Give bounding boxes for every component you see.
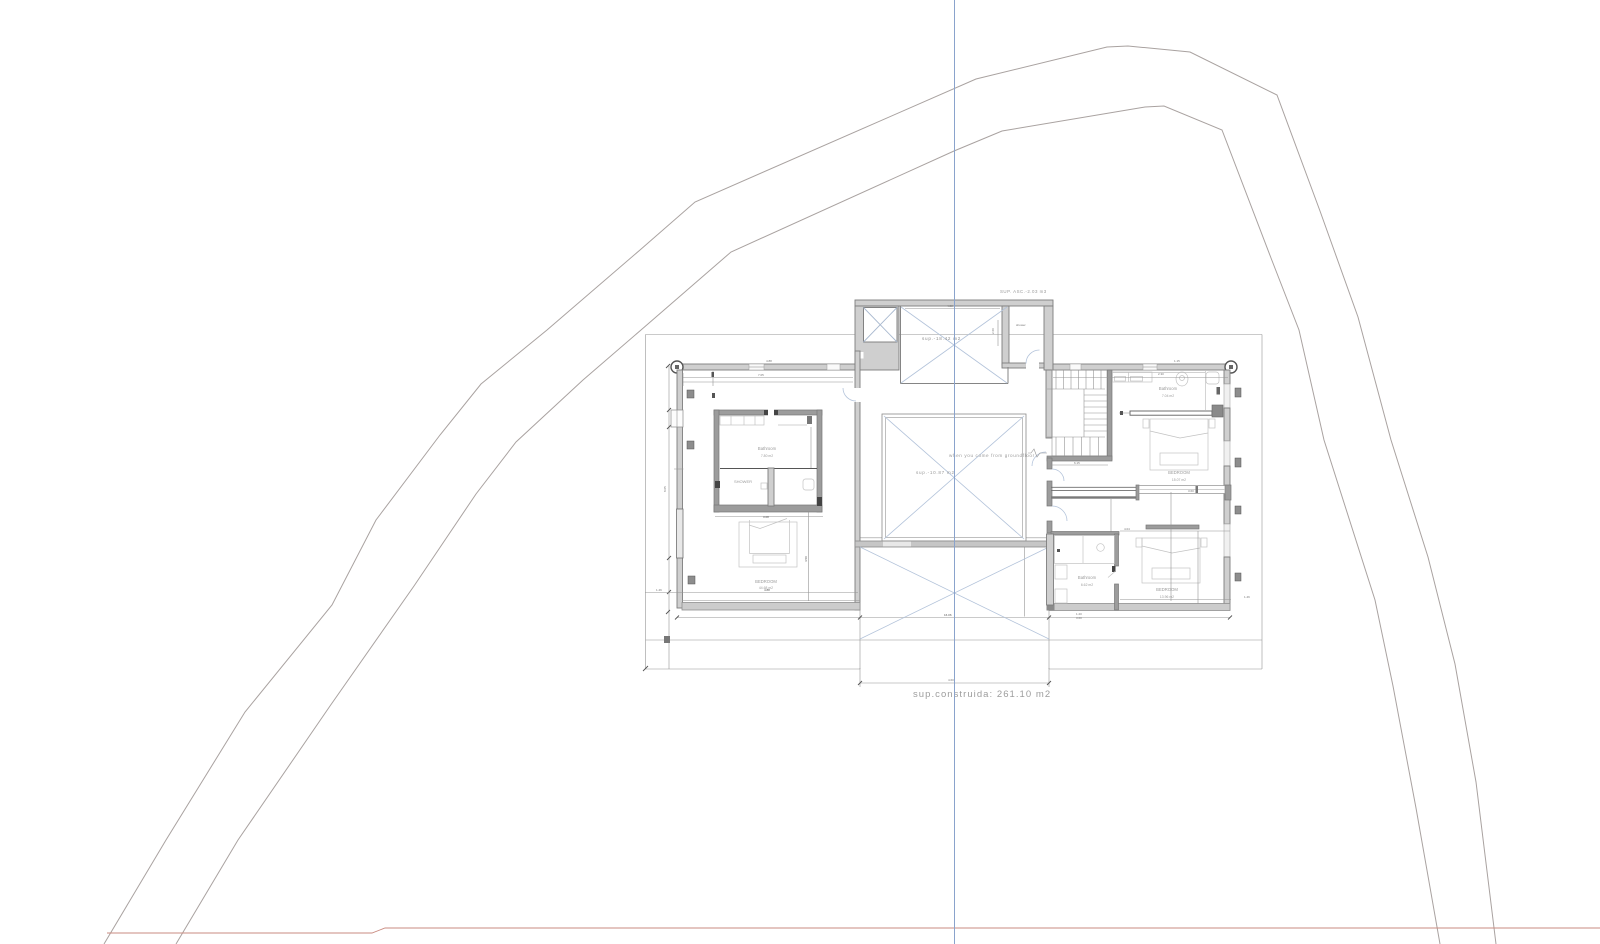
svg-text:6.62 m2: 6.62 m2: [1081, 583, 1093, 587]
svg-text:Bathroom: Bathroom: [1159, 386, 1178, 391]
svg-text:8.05: 8.05: [663, 486, 667, 492]
svg-text:4.88: 4.88: [766, 359, 772, 363]
svg-text:sup.-10.87 m2: sup.-10.87 m2: [916, 470, 955, 475]
svg-text:BEDROOM: BEDROOM: [1156, 587, 1178, 592]
svg-text:when you come from groundfloor: when you come from groundfloor: [949, 453, 1035, 458]
svg-text:2.60: 2.60: [991, 328, 995, 334]
svg-text:Bathroom: Bathroom: [1078, 575, 1097, 580]
svg-text:3.60: 3.60: [1076, 616, 1082, 620]
svg-text:4.60: 4.60: [948, 678, 954, 682]
svg-text:SHOWER: SHOWER: [734, 479, 752, 484]
svg-text:7.05: 7.05: [758, 373, 764, 377]
svg-text:sup.-18.42 m2: sup.-18.42 m2: [922, 336, 961, 341]
svg-text:3.08: 3.08: [763, 515, 769, 519]
svg-text:Bathroom: Bathroom: [758, 446, 777, 451]
svg-text:shower: shower: [1016, 323, 1026, 327]
svg-text:SUP. ASC.-2.03 m3: SUP. ASC.-2.03 m3: [1000, 289, 1047, 294]
svg-text:6.15: 6.15: [1074, 461, 1080, 465]
svg-text:BEDROOM: BEDROOM: [755, 579, 777, 584]
svg-text:3.60: 3.60: [1188, 489, 1194, 493]
svg-text:7.04 m2: 7.04 m2: [1162, 394, 1174, 398]
svg-text:16.06: 16.06: [944, 613, 952, 617]
svg-text:1.46: 1.46: [1244, 595, 1250, 599]
svg-text:4.04: 4.04: [1124, 527, 1130, 531]
svg-text:4.88: 4.88: [947, 304, 953, 308]
svg-text:13.96 m2: 13.96 m2: [1160, 595, 1174, 599]
svg-text:BEDROOM: BEDROOM: [1168, 470, 1190, 475]
svg-text:15.07 m2: 15.07 m2: [1172, 478, 1186, 482]
svg-text:4.88: 4.88: [764, 588, 770, 592]
svg-text:4.50: 4.50: [804, 556, 808, 562]
svg-text:1.15: 1.15: [1174, 359, 1180, 363]
svg-text:7.80 m2: 7.80 m2: [761, 454, 773, 458]
svg-text:1.46: 1.46: [656, 588, 662, 592]
svg-text:sup.construida: 261.10 m2: sup.construida: 261.10 m2: [913, 689, 1051, 700]
svg-text:2.30: 2.30: [1158, 372, 1164, 376]
